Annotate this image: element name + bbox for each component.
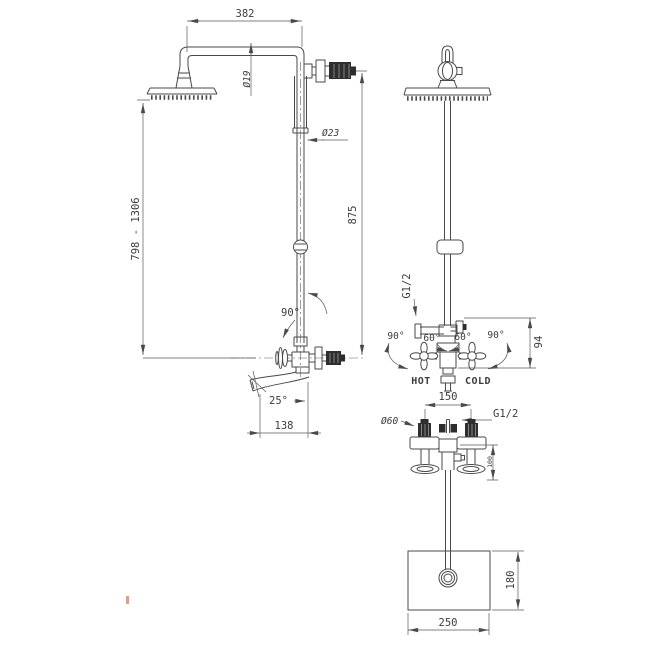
rotation-arc-right <box>488 343 508 369</box>
swivel-arc-arrow <box>308 293 327 314</box>
cold-label: COLD <box>465 376 491 387</box>
red-artifact <box>126 596 129 604</box>
dim-text-height-range: 798 - 1306 <box>130 197 142 260</box>
dim-text-riser-height: 875 <box>347 206 359 225</box>
dim-pipe-diameter: Ø23 <box>308 128 349 140</box>
dim-handle-spacing: 150 <box>425 391 471 429</box>
riser-pipe-side <box>293 62 308 380</box>
dim-text-handle-spacing: 150 <box>439 391 458 403</box>
angle-text-right-inner: 60° <box>454 332 471 343</box>
handle-hub <box>468 352 477 361</box>
dim-text-box-height: 180 <box>505 571 517 590</box>
shower-set-dimension-drawing: 382 Ø19 798 - 1306 <box>0 0 650 650</box>
swivel-arrow <box>283 320 295 338</box>
dim-text-flange-diameter: Ø60 <box>381 416 398 427</box>
dim-text-box-width: 250 <box>439 617 458 629</box>
dim-box-width: 250 <box>408 613 489 635</box>
valve-bottom-assembly <box>410 419 486 569</box>
center-body <box>439 439 457 452</box>
dim-text-inlet-thread: G1/2 <box>401 273 413 298</box>
dim-text-arm-diameter: Ø19 <box>242 70 253 87</box>
dim-spout-reach: 138 <box>247 382 321 438</box>
wall-flange-hot <box>411 465 439 474</box>
leader-right-60 <box>449 344 459 351</box>
wall-union-side <box>304 60 356 82</box>
arrow-down-icon <box>414 299 416 316</box>
hot-label: HOT <box>411 376 431 387</box>
outlet-hose <box>446 470 451 569</box>
bottom-view: 150 Ø60 G1/2 <box>381 391 518 569</box>
slider-ring <box>294 240 308 254</box>
slider-bracket <box>437 240 463 254</box>
hot-stem-knurl <box>418 423 431 437</box>
wall-box-view: 180 250 <box>408 551 524 635</box>
labels-hot-cold: HOT COLD <box>411 376 491 387</box>
arrow-right-icon <box>401 421 414 426</box>
angle-text-left-outer: 90° <box>387 331 404 342</box>
dim-height-range: 798 - 1306 <box>130 100 256 358</box>
angle-text-left-inner: 60° <box>423 333 440 344</box>
technical-drawing-page: 382 Ø19 798 - 1306 <box>0 0 650 650</box>
inlet-knob-side <box>326 351 341 365</box>
hot-flange <box>410 437 439 449</box>
handle-disc-side <box>283 350 288 367</box>
tub-spout-side <box>250 372 309 391</box>
dim-depth: 100 <box>460 445 498 480</box>
dim-flange-diameter: Ø60 <box>381 416 414 427</box>
wall-flange-cold <box>457 465 485 474</box>
dim-text-outlet-thread: G1/2 <box>493 408 518 420</box>
dim-text-depth: 100 <box>486 456 494 468</box>
angle-text-right-outer: 90° <box>487 330 504 341</box>
cold-stem-knurl <box>465 423 478 437</box>
dim-arm-length: 382 <box>187 8 302 52</box>
spout-angle-note: 25° <box>248 371 305 407</box>
angle-text-swivel: 90° <box>281 307 300 319</box>
shower-arm <box>180 47 304 70</box>
dim-text-pipe-diameter: Ø23 <box>322 128 339 139</box>
union-knob <box>329 62 351 79</box>
dim-text-body-height: 94 <box>533 336 545 349</box>
ball-joint <box>438 62 457 81</box>
leader-left-60 <box>437 344 447 351</box>
cold-flange <box>457 437 486 449</box>
showerhead-front <box>404 46 491 99</box>
dim-outlet-thread: G1/2 <box>462 408 518 420</box>
dim-box-height: 180 <box>492 551 524 610</box>
handle-cold <box>458 342 486 370</box>
handle-hot <box>410 342 438 370</box>
dim-inlet-thread-front: G1/2 <box>401 273 416 316</box>
dim-text-arm-length: 382 <box>236 8 255 20</box>
angle-text-spout: 25° <box>269 395 288 407</box>
dim-riser-height: 875 <box>347 71 367 355</box>
side-view: 382 Ø19 798 - 1306 <box>130 8 367 438</box>
rotation-arc-left <box>388 343 408 369</box>
showerhead-side <box>147 66 217 98</box>
dim-text-spout-reach: 138 <box>275 420 294 432</box>
riser-pipe-front <box>437 101 463 326</box>
dim-arm-diameter: Ø19 <box>242 43 253 96</box>
handle-hub <box>420 352 429 361</box>
front-view: G1/2 90° 60° 60° 90° <box>387 46 545 391</box>
